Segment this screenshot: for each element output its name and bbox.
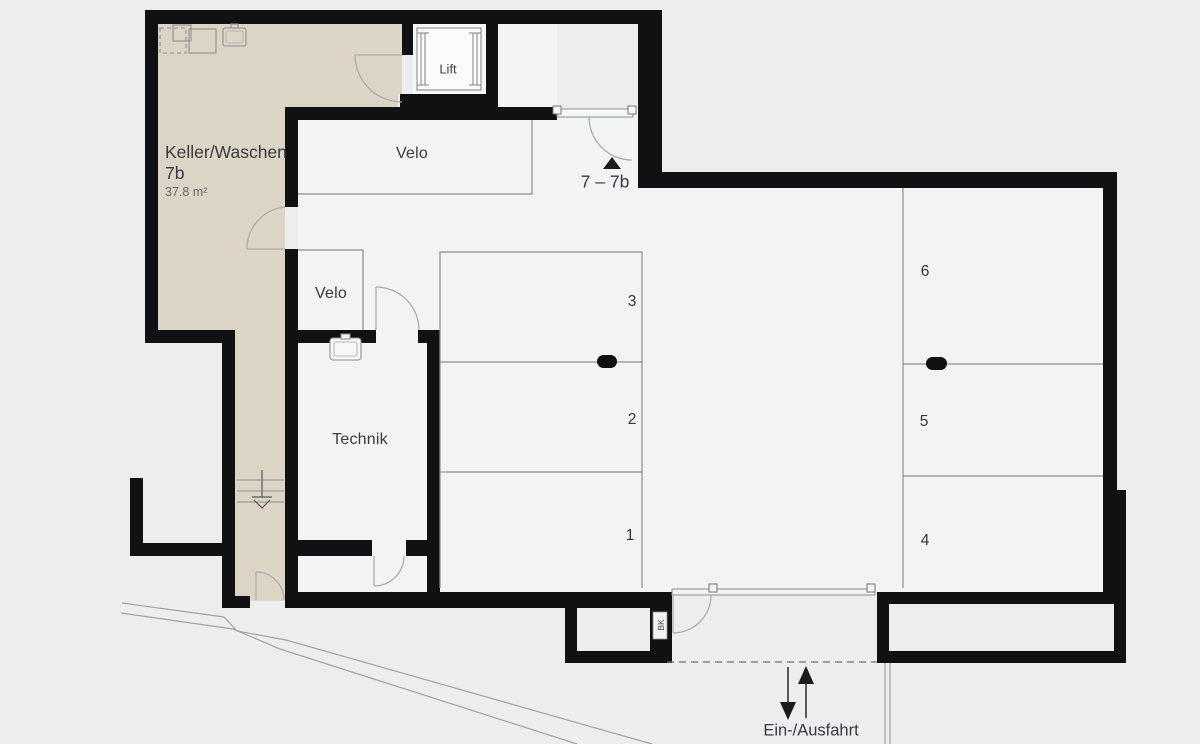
keller-room-area: 37.8 m² bbox=[165, 184, 287, 200]
ramp-edge-right bbox=[885, 663, 890, 744]
wall-keller-right-lower bbox=[285, 249, 298, 608]
lift-label: Lift bbox=[439, 62, 456, 77]
pillar-left bbox=[597, 355, 617, 368]
wall-corridor-right-garage-top bbox=[638, 10, 1117, 188]
gate-hinge-left bbox=[709, 584, 717, 592]
garage-floor bbox=[440, 188, 1103, 592]
wall-top bbox=[145, 10, 662, 24]
wall-keller-bottom bbox=[145, 330, 235, 343]
niche-floor bbox=[498, 24, 557, 115]
wall-sink-icon bbox=[330, 334, 361, 360]
entrance-label: Ein-/Ausfahrt bbox=[763, 722, 858, 741]
floorplan-canvas: Keller/Waschen 7b 37.8 m² Velo Velo Tech… bbox=[0, 0, 1200, 744]
wall-left bbox=[145, 10, 158, 343]
parking-space-1: 1 bbox=[626, 527, 635, 545]
wall-keller-right-upper bbox=[285, 107, 298, 207]
floorplan-drawing bbox=[0, 0, 1200, 744]
parking-space-2: 2 bbox=[628, 411, 637, 429]
parking-space-4: 4 bbox=[921, 532, 930, 550]
unit-range-label: 7 – 7b bbox=[581, 172, 630, 193]
wall-lift-left-top bbox=[402, 24, 413, 55]
gate-hinge-right bbox=[867, 584, 875, 592]
keller-room-name: Keller/Waschen bbox=[165, 142, 287, 163]
wall-frame-bottom-right bbox=[877, 592, 1126, 663]
wall-technik-bottom-right bbox=[406, 540, 427, 556]
keller-room-unit: 7b bbox=[165, 163, 287, 184]
pillar-right bbox=[926, 357, 947, 370]
wall-technik-bottom-left bbox=[298, 540, 372, 556]
wall-fragment-horizontal bbox=[130, 543, 223, 556]
technik-label: Technik bbox=[332, 431, 388, 449]
velo-top-label: Velo bbox=[396, 145, 428, 163]
arrow-in bbox=[780, 667, 796, 720]
parking-space-6: 6 bbox=[921, 263, 930, 281]
wall-lift-bottom bbox=[400, 94, 498, 108]
gate-line bbox=[672, 589, 875, 595]
keller-room-label: Keller/Waschen 7b 37.8 m² bbox=[165, 142, 287, 200]
arrow-out bbox=[798, 666, 814, 718]
velo-small-label: Velo bbox=[315, 285, 347, 303]
bk-duct-label: BK bbox=[656, 619, 666, 630]
wall-corridor-left bbox=[222, 343, 235, 608]
parking-space-5: 5 bbox=[920, 413, 929, 431]
lift-car bbox=[417, 28, 481, 90]
ramp-edge-lower bbox=[121, 613, 577, 744]
wall-technik-right bbox=[427, 330, 440, 592]
wall-garage-right bbox=[1103, 188, 1126, 604]
parking-space-3: 3 bbox=[628, 293, 637, 311]
wall-bottom-corridor-stub bbox=[235, 596, 250, 608]
door-garage-side bbox=[673, 595, 711, 633]
wall-lift-left-bottom bbox=[402, 98, 413, 108]
wall-lift-right bbox=[486, 10, 498, 108]
wall-under-lift bbox=[285, 107, 557, 120]
